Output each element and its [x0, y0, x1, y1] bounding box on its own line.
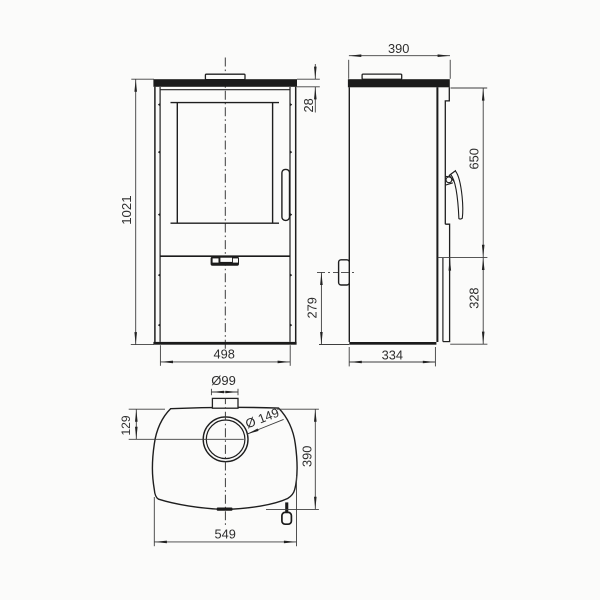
svg-text:28: 28 [301, 98, 316, 112]
svg-text:Ø99: Ø99 [211, 373, 236, 388]
svg-text:650: 650 [467, 148, 482, 169]
svg-text:328: 328 [466, 287, 481, 308]
svg-text:549: 549 [215, 527, 236, 542]
svg-text:390: 390 [388, 41, 409, 56]
svg-text:390: 390 [300, 446, 315, 467]
svg-text:1021: 1021 [119, 195, 134, 224]
svg-text:498: 498 [214, 346, 235, 361]
svg-text:279: 279 [305, 297, 320, 318]
svg-text:334: 334 [382, 348, 403, 363]
svg-text:129: 129 [119, 415, 133, 435]
